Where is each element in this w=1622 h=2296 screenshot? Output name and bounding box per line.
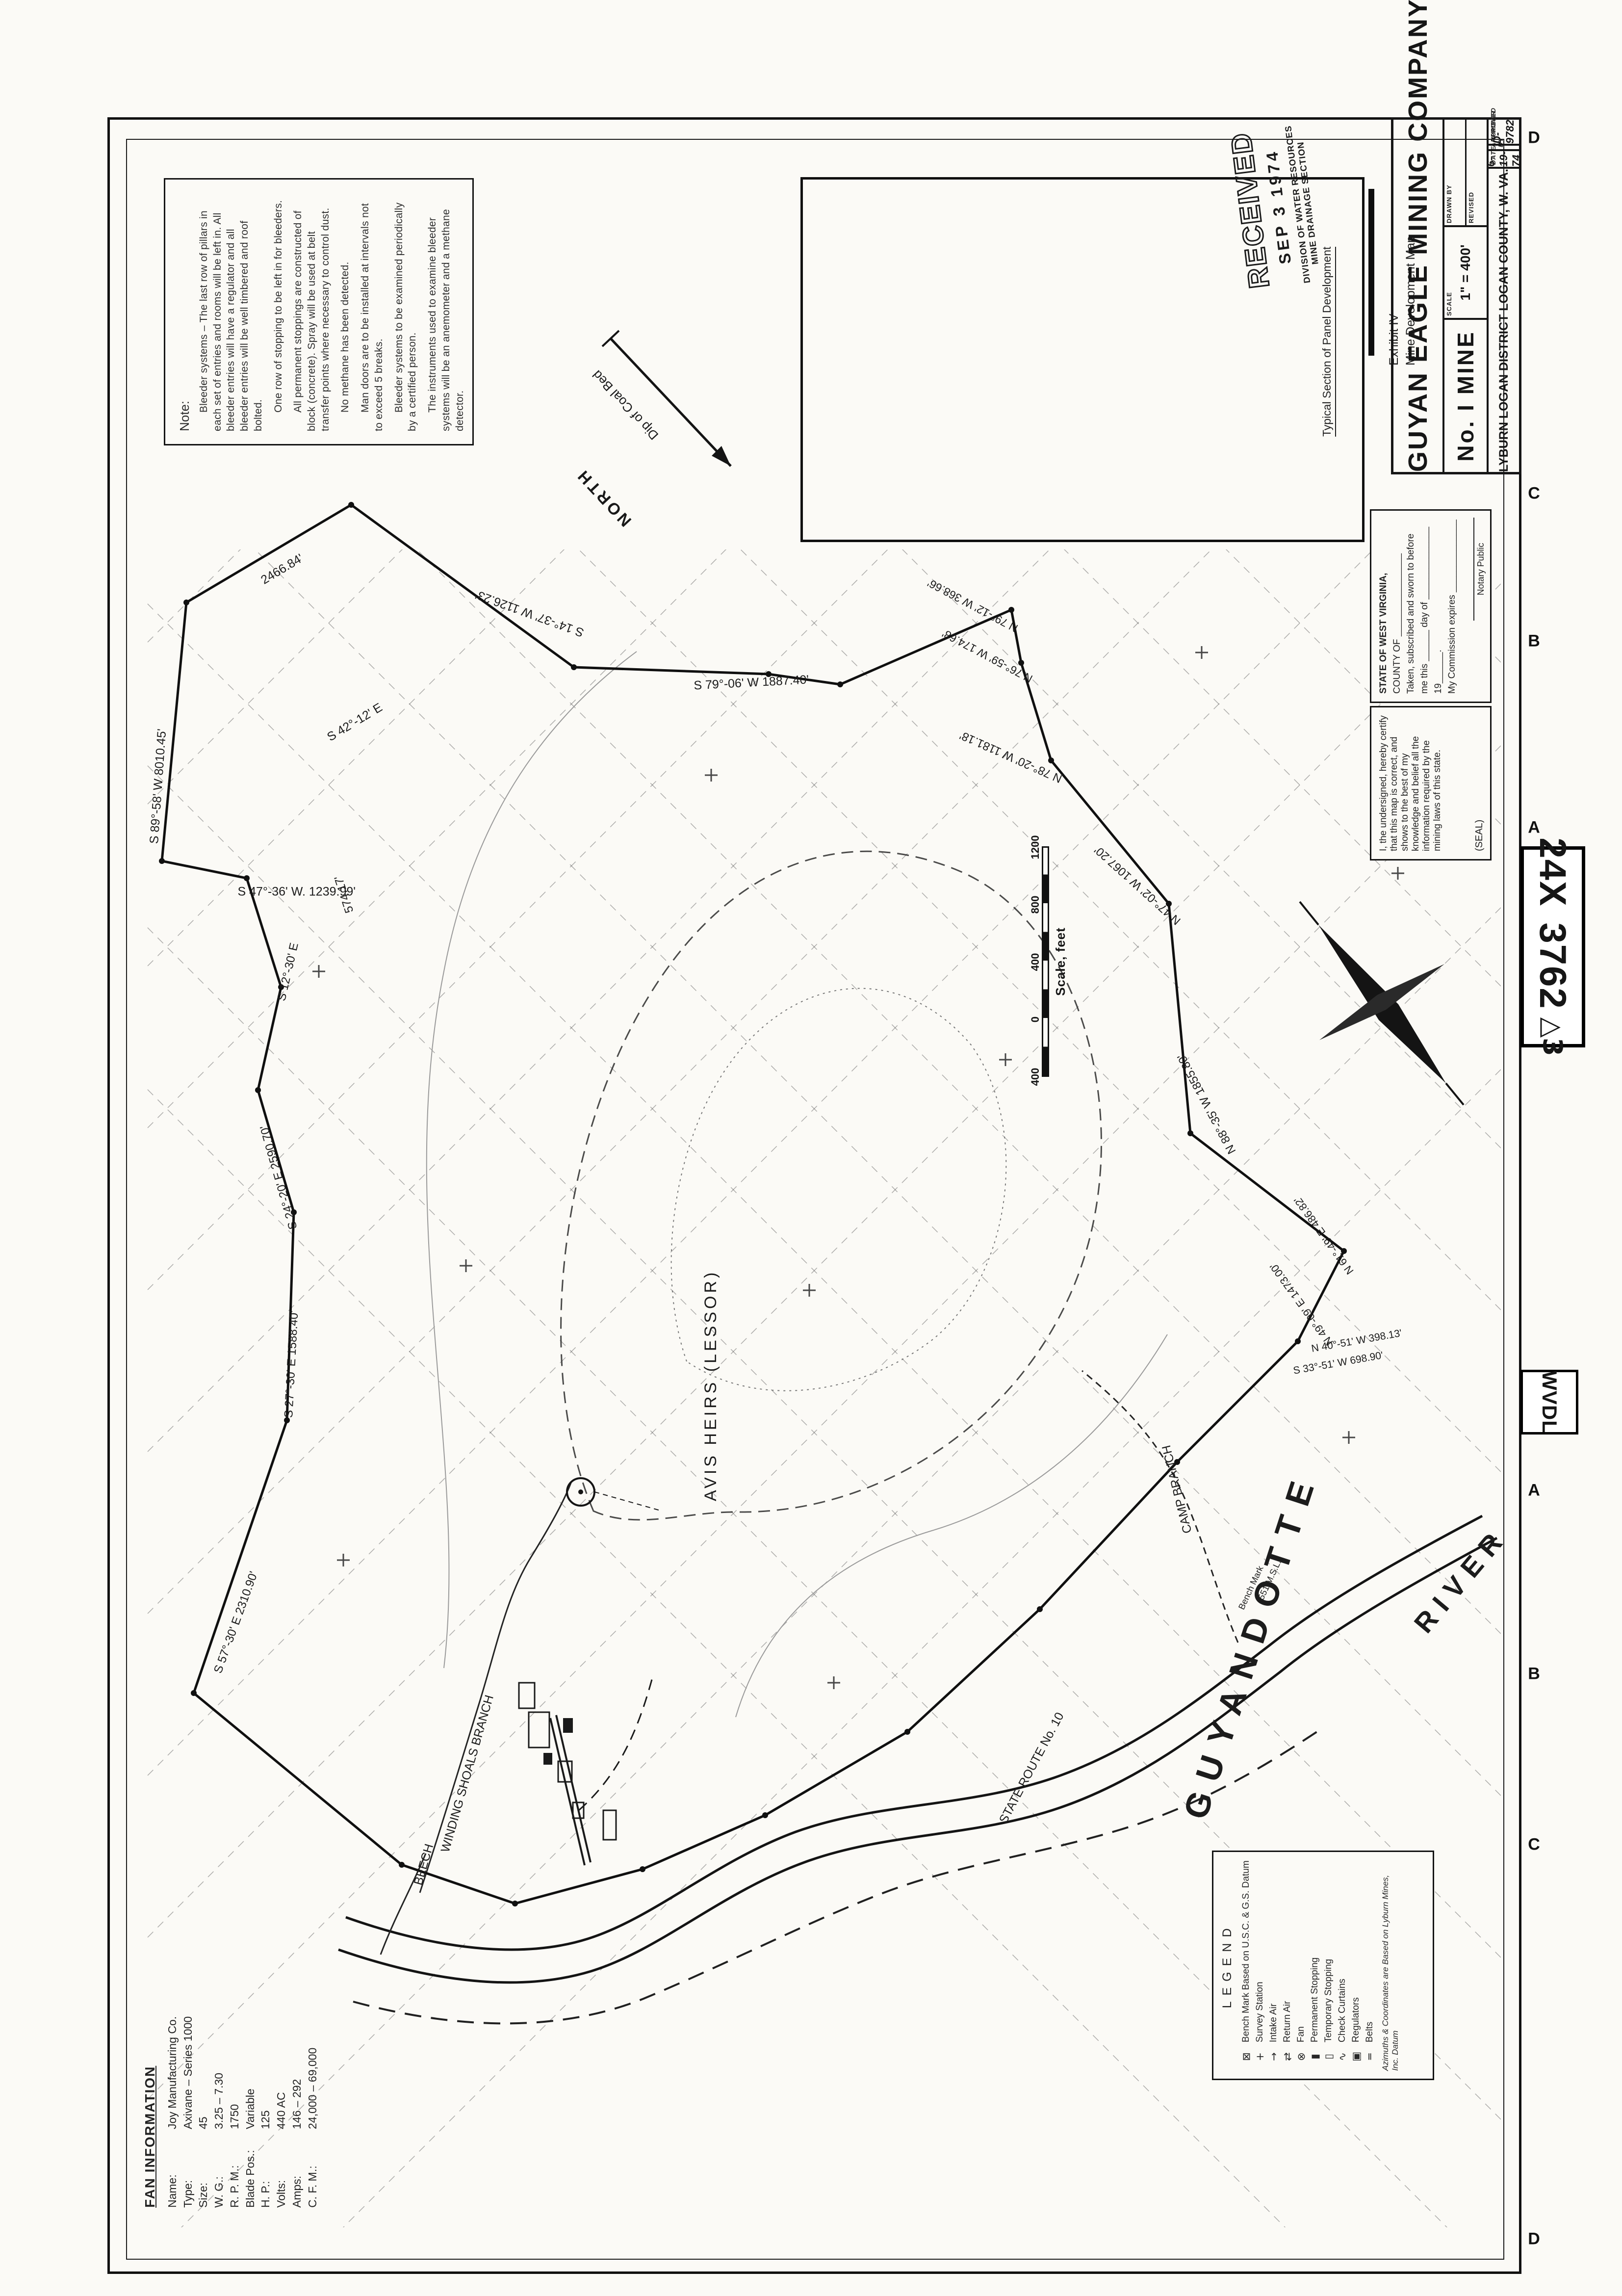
fan-row: Size:45 [196,1894,211,2208]
contour-line [427,652,637,1668]
fan-row: Amps:146 – 292 [289,1894,305,2208]
legend-item-label: Bench Mark Based on U.S.C. & G.S. Datum [1241,1860,1252,2042]
compass-rose [1300,902,1464,1105]
legend-item-label: Regulators [1351,1860,1362,2042]
certification-blocks: I, the undersigned, hereby certify that … [1370,509,1492,861]
check-curtains-icon: ∿ [1337,2042,1348,2071]
fold-letter: A [1524,818,1544,837]
fan-row-label: W. G.: [211,2129,227,2208]
notary-certificate: STATE OF WEST VIRGINIA, COUNTY OF ______… [1370,509,1492,703]
legend-footnote: Azimuths & Coordinates are Based on Lybu… [1381,1860,1400,2071]
mine-surface-works [519,1492,662,1865]
contour-line [671,989,1006,1391]
inset-underline-bar [1368,189,1374,356]
fold-letter: B [1524,632,1544,651]
legend-item-label: Temporary Stopping [1323,1860,1334,2042]
note-paragraph: Man doors are to be installed at interva… [359,192,386,431]
legend-item: +Survey Station [1254,1860,1266,2071]
property-boundary [162,505,1344,1904]
signature-line [1473,518,1474,621]
note-paragraph: Bleeder systems to be examined periodica… [392,192,419,431]
legend-item: ∿Check Curtains [1337,1860,1348,2071]
note-paragraph: The instruments used to examine bleeder … [426,192,466,431]
certificate-text: I, the undersigned, hereby certify that … [1378,715,1443,851]
legend-item: ⊗Fan [1295,1860,1307,2071]
fold-letter: D [1524,129,1544,148]
fold-letter: A [1524,1481,1544,1500]
legend-item-label: Belts [1365,1860,1375,2042]
scale-cell-label: SCALE [1445,292,1453,316]
revised-label: REVISED [1468,192,1475,223]
legend-item-label: Return Air [1282,1860,1293,2042]
fan-row: H. P.:125 [258,1894,274,2208]
scale-tick-labels: 40004008001200 [1029,846,1042,1077]
coal-outcrop-line [561,851,1102,1520]
seal-label: (SEAL) [1474,820,1485,851]
scanned-mine-map-page: Note: Bleeder systems – The last row of … [0,0,1622,2296]
number-cell: NUMBER D-9782 [1489,120,1519,146]
fan-row: C. F. M.:24,000 – 69,000 [305,1894,321,2208]
fan-row-label: Name: [165,2129,180,2208]
legend-item: →Intake Air [1268,1860,1280,2071]
legend-item-label: Check Curtains [1337,1860,1348,2042]
drawn-revised-cell: DRAWN BY REVISED [1444,120,1487,227]
county-line: COUNTY OF ________________ [1392,519,1403,694]
intake-air-icon: → [1268,2042,1280,2071]
winding-shoals-branch-creek [420,1482,571,1893]
fan-row-value: Axivane – Series 1000 [180,1894,196,2129]
fan-row-value: 45 [196,1894,211,2129]
mine-location: LYBURN LOGAN DISTRICT LOGAN COUNTY, W. V… [1489,169,1519,472]
scale-caption: Scale, feet [1053,846,1068,1077]
temporary-stopping-icon: ▯ [1323,2042,1335,2071]
note-paragraph: No methane has been detected. [338,192,352,431]
note-paragraph: One row of stopping to be left in for bl… [272,192,285,431]
fold-letter: C [1524,1835,1544,1854]
fan-row-label: Volts: [274,2129,289,2208]
survey-station-icon: + [1254,2042,1266,2071]
fan-row-value: 125 [258,1894,274,2129]
fan-row-label: Size: [196,2129,211,2208]
notes-box: Note: Bleeder systems – The last row of … [164,178,474,445]
legend-item: ⊠Bench Mark Based on U.S.C. & G.S. Datum [1240,1860,1252,2071]
legend-item: ═Belts [1364,1860,1376,2071]
contour-line [736,1334,1167,1717]
notes-paragraphs: Bleeder systems – The last row of pillar… [197,192,466,431]
fan-row-value: 1750 [227,1894,243,2129]
legend-box: LEGEND ⊠Bench Mark Based on U.S.C. & G.S… [1212,1851,1434,2080]
fan-row-value: 146 – 292 [289,1894,305,2129]
map-sheet: Note: Bleeder systems – The last row of … [0,0,1622,2296]
legend-title: LEGEND [1220,1860,1235,2071]
fan-row: Name:Joy Manufacturing Co. [165,1894,180,2208]
fan-information-rows: Name:Joy Manufacturing Co.Type:Axivane –… [165,1894,320,2208]
approved-by-cell: APPROVED BY [1489,146,1519,151]
fan-row-label: H. P.: [258,2129,274,2208]
inset-inner-caption: Typical Section of Panel Development [1320,247,1336,437]
shaft-center-dot [578,1489,583,1494]
state-line: STATE OF WEST VIRGINIA, [1378,519,1389,694]
drawn-by-label: DRAWN BY [1445,184,1453,223]
camp-branch-creek [1082,1371,1238,1643]
fan-row: Blade Pos.:Variable [243,1894,258,2208]
regulators-icon: ▣ [1350,2042,1362,2071]
date-cell: DATE 6-19-74 [1489,151,1519,169]
fan-row-label: Blade Pos.: [243,2129,258,2208]
year-line: 19______. [1433,519,1444,694]
microfilm-number: 3762 [1532,923,1574,1010]
fan-row-value: Joy Manufacturing Co. [165,1894,180,2129]
fan-row-label: C. F. M.: [305,2129,321,2208]
legend-item-label: Survey Station [1255,1860,1265,2042]
notary-public-label: Notary Public [1476,518,1486,621]
boundary-monuments [159,502,1347,1906]
scale-cell: SCALE 1" = 400' [1444,227,1487,320]
surveyor-certificate: I, the undersigned, hereby certify that … [1370,706,1492,861]
microfilm-suffix: △3 [1538,1018,1569,1056]
return-air-icon: ⇄ [1282,2042,1293,2071]
scale-bar: 40004008001200 Scale, feet [1029,846,1068,1077]
mine-name: No. I MINE [1444,320,1487,472]
me-this-line: me this ______ day of ______________ [1419,519,1430,694]
drawn-by-cell: DRAWN BY [1444,120,1465,225]
fan-row-value: 3.25 – 7.30 [211,1894,227,2129]
fan-row-value: 440 AC [274,1894,289,2129]
notes-heading: Note: [177,192,192,431]
notary-signature: Notary Public [1473,518,1486,621]
fan-row: R. P. M.:1750 [227,1894,243,2208]
bench-mark-icon: ⊠ [1240,2042,1252,2071]
legend-item: ▮Permanent Stopping [1309,1860,1321,2071]
fan-row-label: Type: [180,2129,196,2208]
fan-row-value: Variable [243,1894,258,2129]
microfilm-index-stamp: 24X 3762 △3 [1520,846,1585,1047]
fold-letter: C [1524,484,1544,503]
fan-information-box: FAN INFORMATION Name:Joy Manufacturing C… [142,1894,329,2208]
fan-row-label: R. P. M.: [227,2129,243,2208]
scale-tick-label: 800 [1029,896,1042,914]
legend-item: ⇄Return Air [1282,1860,1293,2071]
legend-item-label: Intake Air [1268,1860,1279,2042]
revised-cell: REVISED [1465,120,1487,225]
scale-tick-label: 400 [1029,1068,1042,1086]
fan-information-title: FAN INFORMATION [142,1894,158,2208]
legend-items: ⊠Bench Mark Based on U.S.C. & G.S. Datum… [1240,1860,1376,2071]
fan-row: W. G.:3.25 – 7.30 [211,1894,227,2208]
note-paragraph: All permanent stoppings are constructed … [291,192,332,431]
wvdl-stamp: WVDL [1520,1370,1578,1435]
section-corner-crosses [312,646,1404,1689]
legend-item: ▣Regulators [1350,1860,1362,2071]
fold-letter: D [1524,2230,1544,2249]
number-label: NUMBER [1490,111,1497,142]
note-paragraph: Bleeder systems – The last row of pillar… [197,192,265,431]
fan-row: Type:Axivane – Series 1000 [180,1894,196,2208]
scale-tick-label: 400 [1029,953,1042,971]
legend-item-label: Permanent Stopping [1310,1860,1320,2042]
fan-row-label: Amps: [289,2129,305,2208]
sworn-line: Taken, subscribed and sworn to before [1406,519,1416,694]
title-block: GUYAN EAGLE MINING COMPANY No. I MINE SC… [1391,117,1521,474]
company-name: GUYAN EAGLE MINING COMPANY [1393,0,1442,472]
scale-tick-label: 0 [1029,1017,1042,1022]
fan-icon: ⊗ [1295,2042,1307,2071]
belts-icon: ═ [1364,2042,1376,2071]
legend-item: ▯Temporary Stopping [1323,1860,1335,2071]
fan-row: Volts:440 AC [274,1894,289,2208]
map-label: AVIS HEIRS (LESSOR) [701,1270,721,1501]
scale-tick-label: 1200 [1029,835,1042,860]
permanent-stopping-icon: ▮ [1309,2042,1321,2071]
scale-strip [1042,846,1049,1077]
commission-line: My Commission expires ______________ [1447,519,1458,694]
fan-row-value: 24,000 – 69,000 [305,1894,321,2129]
fold-letter: B [1524,1665,1544,1684]
scale-value: 1" = 400' [1458,244,1473,300]
microfilm-reel: 24X [1532,837,1574,907]
legend-item-label: Fan [1296,1860,1307,2042]
